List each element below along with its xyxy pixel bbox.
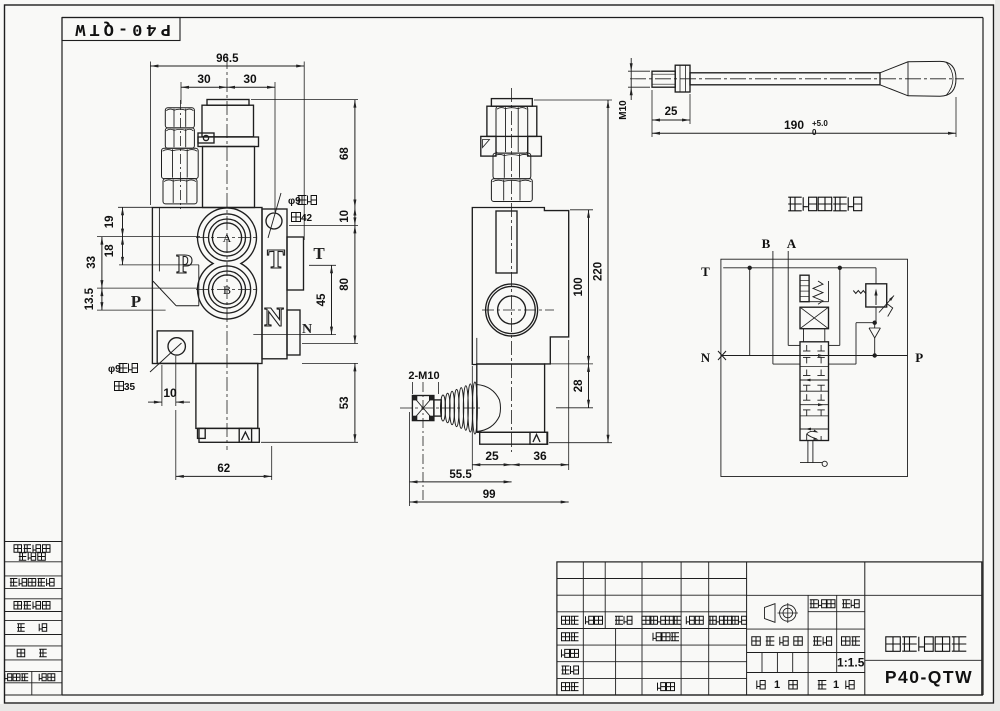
svg-text:35: 35 <box>124 382 136 393</box>
svg-text:B: B <box>762 236 771 251</box>
svg-text:53: 53 <box>339 397 351 410</box>
svg-text:P: P <box>176 249 193 279</box>
svg-text:P: P <box>131 292 141 311</box>
svg-text:96.5: 96.5 <box>216 53 239 65</box>
svg-text:55.5: 55.5 <box>449 469 472 481</box>
svg-text:19: 19 <box>104 216 116 229</box>
svg-text:25: 25 <box>665 106 678 118</box>
svg-text:0: 0 <box>812 128 817 137</box>
svg-text:100: 100 <box>573 277 585 296</box>
svg-text:2-M10: 2-M10 <box>408 370 439 382</box>
svg-text:P: P <box>915 350 923 365</box>
svg-text:1: 1 <box>833 679 839 691</box>
svg-text:30: 30 <box>197 72 211 86</box>
svg-text:13.5: 13.5 <box>84 287 96 310</box>
svg-text:99: 99 <box>483 489 496 501</box>
svg-text:33: 33 <box>86 256 98 269</box>
svg-text:25: 25 <box>485 449 499 463</box>
svg-text:80: 80 <box>339 278 351 291</box>
svg-text:+5.0: +5.0 <box>812 119 828 128</box>
svg-text:M10: M10 <box>618 100 629 120</box>
svg-text:N: N <box>264 302 284 332</box>
svg-text:30: 30 <box>243 72 257 86</box>
svg-text:N: N <box>701 350 711 365</box>
svg-text:1: 1 <box>774 679 780 691</box>
svg-text:T: T <box>701 264 710 279</box>
svg-text:P40-QTW: P40-QTW <box>885 667 973 687</box>
svg-text:28: 28 <box>573 379 585 392</box>
svg-text:1:1.5: 1:1.5 <box>837 656 865 670</box>
svg-text:P40-QTW: P40-QTW <box>71 19 170 38</box>
svg-text:36: 36 <box>533 449 547 463</box>
svg-text:18: 18 <box>104 244 116 257</box>
svg-text:T: T <box>313 244 325 263</box>
svg-text:220: 220 <box>593 262 605 281</box>
svg-text:10: 10 <box>163 386 177 400</box>
svg-text:68: 68 <box>339 147 351 160</box>
svg-text:A: A <box>787 236 797 251</box>
svg-text:42: 42 <box>301 213 313 224</box>
svg-text:T: T <box>267 244 285 274</box>
svg-text:45: 45 <box>316 293 328 306</box>
svg-text:62: 62 <box>217 463 230 475</box>
svg-text:φ9: φ9 <box>108 364 121 375</box>
svg-text:190: 190 <box>784 118 804 132</box>
svg-text:10: 10 <box>339 210 351 223</box>
